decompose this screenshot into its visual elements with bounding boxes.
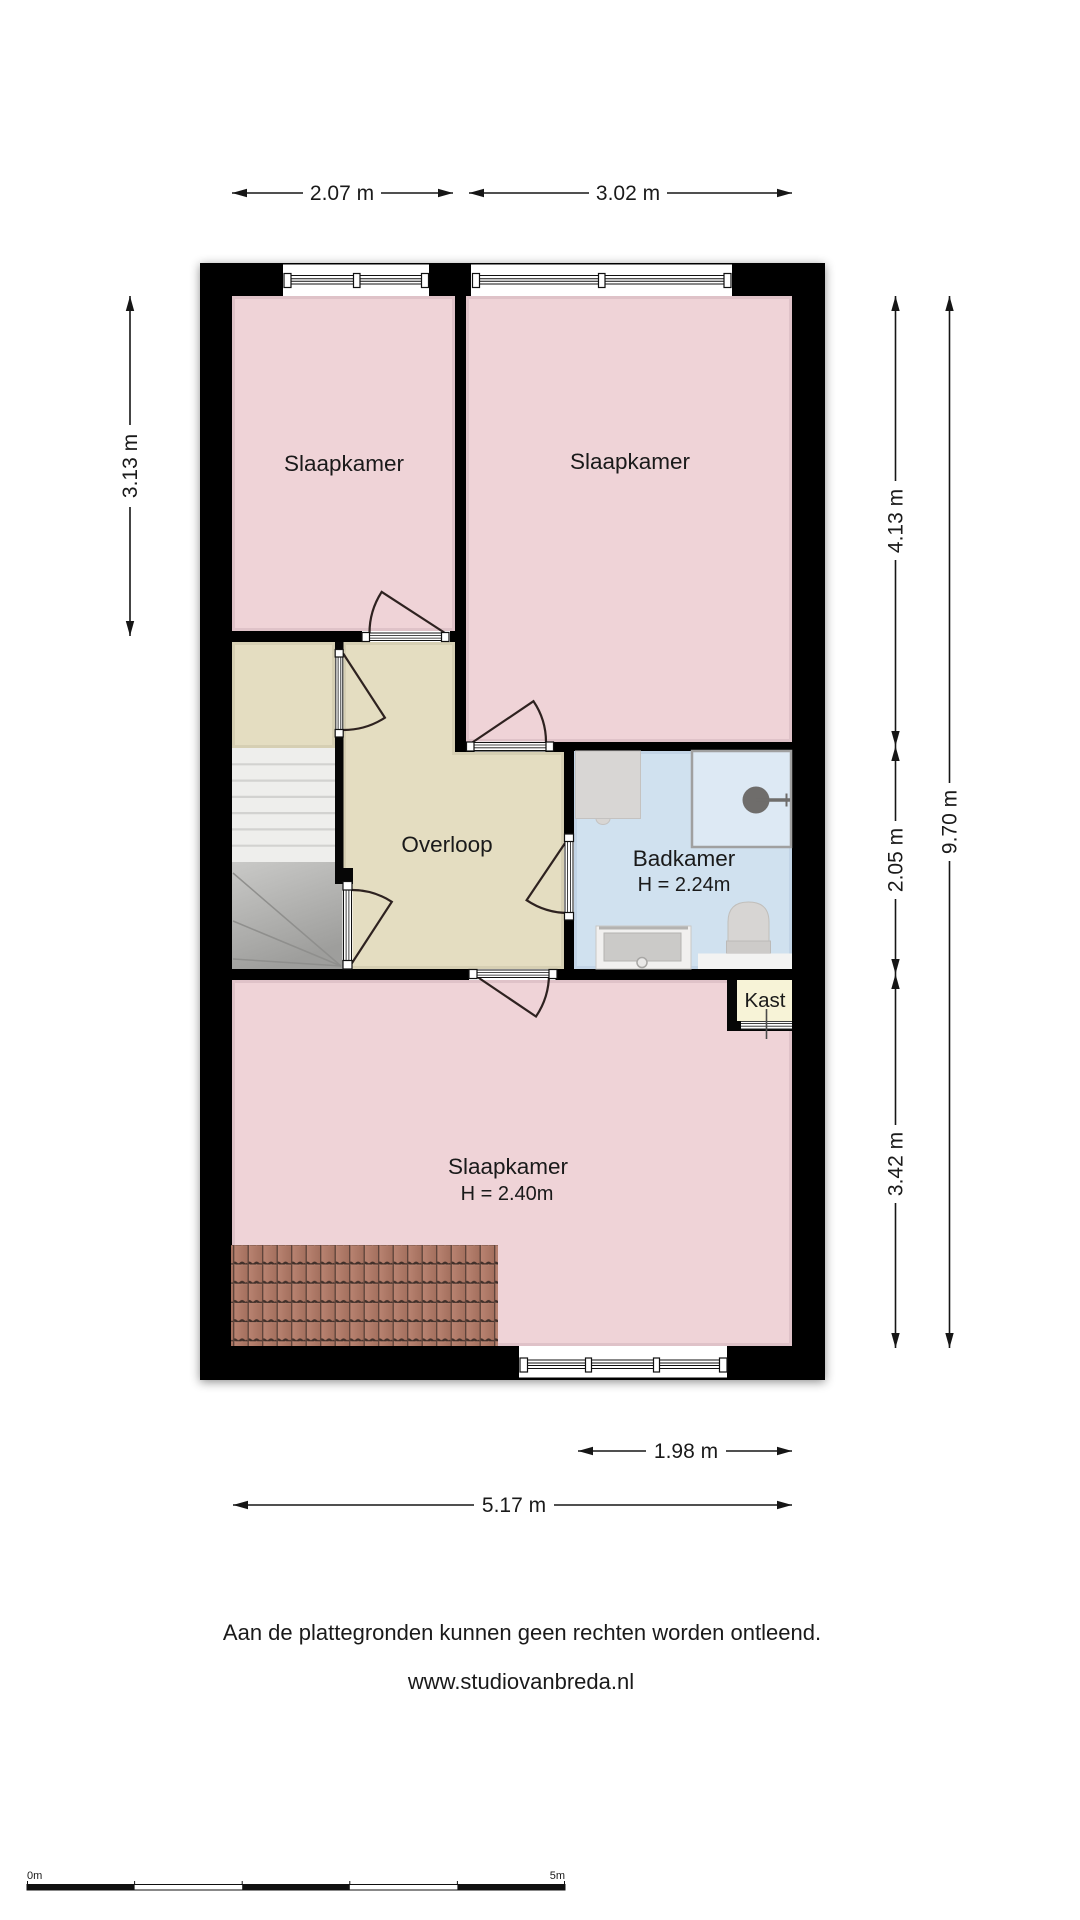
svg-text:5.17 m: 5.17 m — [482, 1494, 546, 1517]
svg-text:Slaapkamer: Slaapkamer — [448, 1154, 569, 1179]
svg-text:www.studiovanbreda.nl: www.studiovanbreda.nl — [407, 1669, 634, 1694]
svg-text:3.42 m: 3.42 m — [885, 1132, 908, 1196]
svg-text:2.05 m: 2.05 m — [885, 828, 908, 892]
svg-text:9.70 m: 9.70 m — [939, 790, 962, 854]
svg-text:1.98 m: 1.98 m — [654, 1440, 718, 1463]
svg-text:H = 2.24m: H = 2.24m — [638, 874, 731, 896]
svg-text:4.13 m: 4.13 m — [885, 489, 908, 553]
svg-text:Aan de plattegronden kunnen ge: Aan de plattegronden kunnen geen rechten… — [223, 1620, 821, 1645]
svg-text:Slaapkamer: Slaapkamer — [570, 449, 691, 474]
svg-text:Badkamer: Badkamer — [633, 846, 736, 871]
svg-text:3.13 m: 3.13 m — [119, 434, 142, 498]
svg-text:2.07 m: 2.07 m — [310, 182, 374, 205]
svg-text:Slaapkamer: Slaapkamer — [284, 451, 405, 476]
svg-text:Kast: Kast — [744, 989, 785, 1012]
svg-text:0m: 0m — [27, 1870, 42, 1882]
svg-text:H = 2.40m: H = 2.40m — [461, 1183, 554, 1205]
svg-text:5m: 5m — [550, 1870, 565, 1882]
svg-text:3.02 m: 3.02 m — [596, 182, 660, 205]
svg-text:Overloop: Overloop — [401, 832, 492, 857]
